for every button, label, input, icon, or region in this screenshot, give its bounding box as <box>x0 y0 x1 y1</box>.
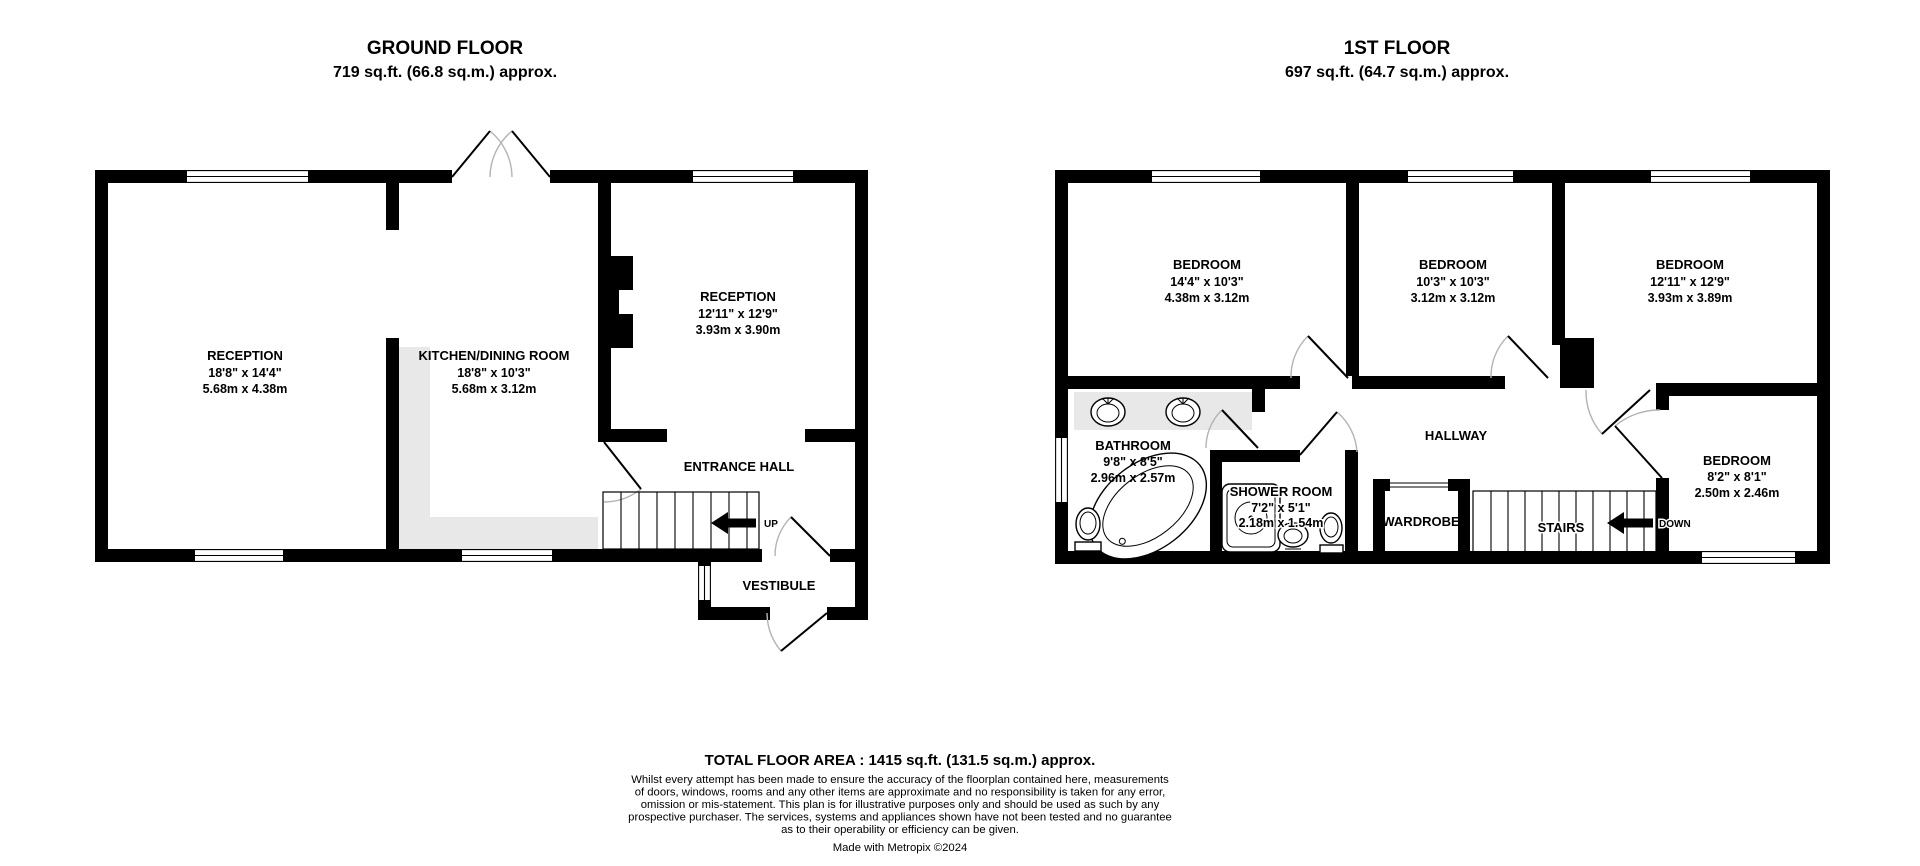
room-label-bedroom4: BEDROOM 8'2" x 8'1" 2.50m x 2.46m <box>1695 453 1780 500</box>
floorplan-page: GROUND FLOOR 719 sq.ft. (66.8 sq.m.) app… <box>0 0 1920 866</box>
room-dims-metric: 3.12m x 3.12m <box>1411 291 1496 305</box>
window <box>1055 438 1068 502</box>
stairs-up-arrow <box>711 512 756 534</box>
room-label-bathroom: BATHROOM 9'8" x 8'5" 2.96m x 2.57m <box>1091 438 1176 485</box>
window <box>187 170 308 183</box>
room-label-hallway: HALLWAY <box>1425 428 1488 443</box>
room-dims-metric: 3.93m x 3.90m <box>696 323 781 337</box>
footer: TOTAL FLOOR AREA : 1415 sq.ft. (131.5 sq… <box>628 752 1172 854</box>
sink-icon <box>1166 398 1200 426</box>
window <box>698 566 711 600</box>
first-floor-title: 1ST FLOOR 697 sq.ft. (64.7 sq.m.) approx… <box>1285 38 1509 81</box>
room-dims-metric: 2.50m x 2.46m <box>1695 486 1780 500</box>
room-label-vestibule: VESTIBULE <box>743 578 816 593</box>
room-label-reception-left: RECEPTION 18'8" x 14'4" 5.68m x 4.38m <box>203 348 288 396</box>
window <box>1651 170 1750 183</box>
room-dims-metric: 3.93m x 3.89m <box>1648 291 1733 305</box>
total-floor-area: TOTAL FLOOR AREA : 1415 sq.ft. (131.5 sq… <box>705 752 1096 769</box>
room-name: RECEPTION <box>207 348 283 363</box>
window <box>1702 551 1795 564</box>
wardrobe-door <box>1390 483 1448 487</box>
room-label-bedroom3: BEDROOM 12'11" x 12'9" 3.93m x 3.89m <box>1648 257 1733 305</box>
toilet-icon <box>1320 513 1343 553</box>
metropix-credit: Made with Metropix ©2024 <box>833 842 968 854</box>
room-name: BEDROOM <box>1419 257 1487 272</box>
shower-room-door <box>1300 412 1357 455</box>
bedroom4-door <box>1615 410 1662 478</box>
room-label-kitchen: KITCHEN/DINING ROOM 18'8" x 10'3" 5.68m … <box>419 348 570 396</box>
room-dims-metric: 5.68m x 4.38m <box>203 382 288 396</box>
first-floor-title-text: 1ST FLOOR <box>1344 38 1451 59</box>
room-label-bedroom1: BEDROOM 14'4" x 10'3" 4.38m x 3.12m <box>1165 257 1250 305</box>
ground-floor-title: GROUND FLOOR 719 sq.ft. (66.8 sq.m.) app… <box>333 38 557 81</box>
disclaimer-line: prospective purchaser. The services, sys… <box>628 812 1172 824</box>
disclaimer-line: Whilst every attempt has been made to en… <box>631 774 1169 786</box>
first-floor-area-text: 697 sq.ft. (64.7 sq.m.) approx. <box>1285 64 1509 81</box>
first-floor-plan: STAIRS DOWN BEDROOM 14'4" x 10'3" 4.38m … <box>1055 170 1830 581</box>
disclaimer-line: as to their operability or efficiency ca… <box>781 824 1019 836</box>
ground-floor-plan: UP RECEPTION 18'8" x 14'4" 5.68m x 4.38m… <box>95 131 868 651</box>
window <box>1152 170 1260 183</box>
room-label-reception-right: RECEPTION 12'11" x 12'9" 3.93m x 3.90m <box>696 289 781 337</box>
bedroom1-door <box>1291 336 1348 378</box>
stairs-up-label: UP <box>764 519 778 530</box>
ground-floor-area-text: 719 sq.ft. (66.8 sq.m.) approx. <box>333 64 557 81</box>
stairs-down-label: DOWN <box>1659 519 1691 530</box>
vestibule-exterior-door <box>767 613 827 651</box>
window <box>693 170 793 183</box>
room-dims-metric: 5.68m x 3.12m <box>452 382 537 396</box>
room-label-wardrobe: WARDROBE <box>1382 514 1460 529</box>
room-name: BATHROOM <box>1095 438 1171 453</box>
french-doors <box>452 131 550 177</box>
ground-floor-title-text: GROUND FLOOR <box>367 38 523 59</box>
room-dims-imperial: 9'8" x 8'5" <box>1103 455 1163 469</box>
entrance-door <box>775 517 830 556</box>
room-name: KITCHEN/DINING ROOM <box>419 348 570 363</box>
room-name: BEDROOM <box>1173 257 1241 272</box>
room-dims-metric: 4.38m x 3.12m <box>1165 291 1250 305</box>
ground-stairs: UP <box>603 492 778 549</box>
window <box>195 549 283 562</box>
stairs-down-arrow <box>1607 512 1653 534</box>
room-dims-metric: 2.18m x 1.54m <box>1239 516 1324 530</box>
window <box>462 549 552 562</box>
bedroom2-door <box>1491 336 1548 378</box>
toilet-icon <box>1075 508 1101 551</box>
room-name: BEDROOM <box>1703 453 1771 468</box>
room-name: BEDROOM <box>1656 257 1724 272</box>
room-dims-imperial: 12'11" x 12'9" <box>1650 275 1730 289</box>
window <box>1408 170 1513 183</box>
room-dims-imperial: 8'2" x 8'1" <box>1707 470 1767 484</box>
room-dims-metric: 2.96m x 2.57m <box>1091 471 1176 485</box>
room-label-entrance-hall: ENTRANCE HALL <box>684 459 795 474</box>
kitchen-hall-door <box>604 442 641 502</box>
floorplan-canvas: GROUND FLOOR 719 sq.ft. (66.8 sq.m.) app… <box>0 0 1920 866</box>
disclaimer-line: of doors, windows, rooms and any other i… <box>635 787 1166 799</box>
room-dims-imperial: 10'3" x 10'3" <box>1416 275 1489 289</box>
disclaimer-line: omission or mis-statement. This plan is … <box>641 799 1160 811</box>
room-name: SHOWER ROOM <box>1230 484 1333 499</box>
stairs-label: STAIRS <box>1538 520 1585 535</box>
room-dims-imperial: 18'8" x 10'3" <box>457 366 530 380</box>
room-dims-imperial: 12'11" x 12'9" <box>698 307 778 321</box>
sink-icon <box>1091 398 1125 426</box>
room-name: RECEPTION <box>700 289 776 304</box>
room-dims-imperial: 18'8" x 14'4" <box>208 366 281 380</box>
room-dims-imperial: 7'2" x 5'1" <box>1251 501 1311 515</box>
room-dims-imperial: 14'4" x 10'3" <box>1170 275 1243 289</box>
room-label-bedroom2: BEDROOM 10'3" x 10'3" 3.12m x 3.12m <box>1411 257 1496 305</box>
